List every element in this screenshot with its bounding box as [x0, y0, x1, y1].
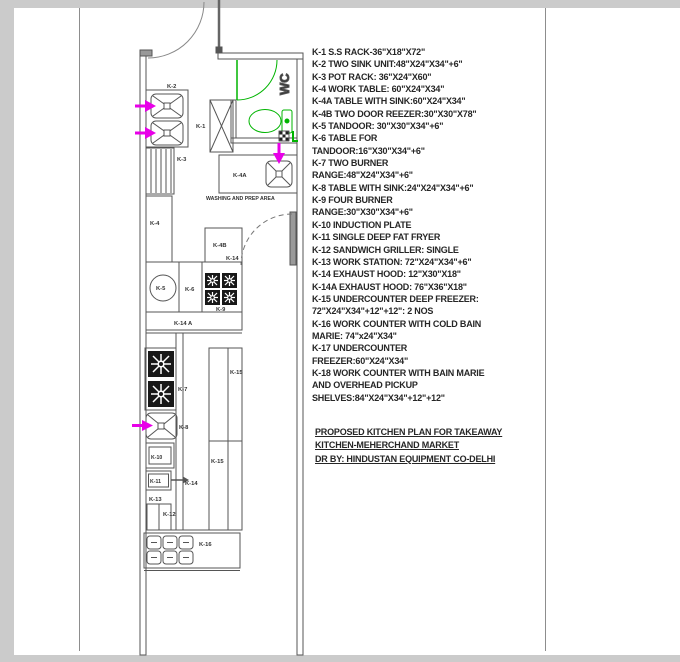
bain-marie-pans — [147, 536, 193, 564]
sink-icon — [266, 161, 292, 187]
wc-room: WC — [231, 60, 298, 143]
legend-line: K-2 TWO SINK UNIT:48"X24"X34"+6" — [312, 58, 544, 70]
wc-door — [237, 60, 277, 100]
legend-line: AND OVERHEAD PICKUP — [312, 379, 544, 391]
equipment-k16-bain-marie-counter: K-16 — [144, 533, 240, 571]
legend-line: K-6 TABLE FOR — [312, 132, 544, 144]
label-k14a: K-14 A — [174, 321, 193, 327]
legend-line: K-13 WORK STATION: 72"X24"X34"+6" — [312, 256, 544, 268]
label-k4a: K-4A — [233, 173, 247, 179]
equipment-k3-pot-rack: K-3 — [146, 148, 187, 194]
washing-prep-area-label: WASHING AND PREP AREA — [206, 196, 275, 202]
legend-line: K-1 S.S RACK-36"X18"X72" — [312, 46, 544, 58]
legend-line: K-8 TABLE WITH SINK:24"X24"X34"+6" — [312, 182, 544, 194]
toilet-icon — [249, 110, 292, 134]
wc-room-label: WC — [277, 73, 292, 95]
label-k6: K-6 — [185, 287, 195, 293]
four-burner-range-icon — [205, 273, 237, 305]
legend-line: K-14 EXHAUST HOOD: 12"X30"X18" — [312, 268, 544, 280]
entrance-door-arc — [148, 2, 204, 58]
label-k13: K-13 — [149, 497, 162, 503]
cad-viewport: { "plan": { "wc_label": "WC", "area_labe… — [0, 0, 680, 662]
water-supply-arrow — [135, 100, 156, 112]
title-line: PROPOSED KITCHEN PLAN FOR TAKEAWAY — [315, 426, 545, 439]
water-supply-arrow — [132, 420, 153, 431]
legend-line: K-4B TWO DOOR REEZER:30"X30"X78" — [312, 108, 544, 120]
label-k16: K-16 — [199, 542, 212, 548]
legend-line: 72"X24"X34"+12"+12": 2 NOS — [312, 305, 544, 317]
legend-line: TANDOOR:16"X30"X34"+6" — [312, 145, 544, 157]
legend-line: K-14A EXHAUST HOOD: 76"X36"X18" — [312, 281, 544, 293]
legend-line: K-3 POT RACK: 36"X24"X60" — [312, 71, 544, 83]
legend-line: K-17 UNDERCOUNTER — [312, 342, 544, 354]
equipment-legend: K-1 S.S RACK-36"X18"X72"K-2 TWO SINK UNI… — [312, 46, 544, 404]
walls — [140, 0, 303, 655]
legend-line: K-7 TWO BURNER — [312, 157, 544, 169]
legend-line: RANGE:48"X24"X34"+6" — [312, 169, 544, 181]
legend-line: K-11 SINGLE DEEP FAT FRYER — [312, 231, 544, 243]
label-k3: K-3 — [177, 157, 187, 163]
label-k10: K-10 — [151, 455, 162, 461]
equipment-k10-induction: K-10 — [146, 443, 174, 468]
service-door — [241, 212, 296, 265]
equipment-k1-rack: K-1 — [196, 100, 233, 152]
label-k4b: K-4B — [213, 243, 227, 249]
legend-line: RANGE:30"X30"X34"+6" — [312, 206, 544, 218]
equipment-k15-freezers: K-15 K-15 — [209, 348, 243, 530]
legend-line: K-15 UNDERCOUNTER DEEP FREEZER: — [312, 293, 544, 305]
label-k14-top: K-14 — [226, 256, 239, 262]
title-block: PROPOSED KITCHEN PLAN FOR TAKEAWAYKITCHE… — [315, 426, 545, 466]
legend-line: MARIE: 74"x24"X34" — [312, 330, 544, 342]
legend-line: K-10 INDUCTION PLATE — [312, 219, 544, 231]
label-k11: K-11 — [150, 479, 161, 485]
water-supply-arrow — [135, 127, 156, 139]
legend-line: K-5 TANDOOR: 30"X30"X34"+6" — [312, 120, 544, 132]
label-k1: K-1 — [196, 124, 206, 130]
floor-drain-icon — [279, 131, 289, 141]
label-k8: K-8 — [179, 425, 189, 431]
equipment-k4-work-table: K-4 — [146, 196, 172, 262]
label-k5: K-5 — [156, 286, 166, 292]
label-k15-upper: K-15 — [230, 370, 243, 376]
label-k12: K-12 — [163, 512, 176, 518]
legend-line: K-16 WORK COUNTER WITH COLD BAIN — [312, 318, 544, 330]
label-k2: K-2 — [167, 84, 176, 90]
legend-line: K-12 SANDWICH GRILLER: SINGLE — [312, 244, 544, 256]
legend-line: K-4A TABLE WITH SINK:60"X24"X34" — [312, 95, 544, 107]
cooking-counter: K-5 K-6 — [146, 262, 242, 313]
legend-line: K-18 WORK COUNTER WITH BAIN MARIE — [312, 367, 544, 379]
title-line: KITCHEN-MEHERCHAND MARKET — [315, 439, 545, 452]
title-line: DR BY: HINDUSTAN EQUIPMENT CO-DELHI — [315, 453, 545, 466]
equipment-k14a-hood: K-14 A — [146, 312, 242, 333]
label-k14-mid: K-14 — [185, 481, 198, 487]
legend-line: SHELVES:84"X24"X34"+12"+12" — [312, 392, 544, 404]
legend-line: K-4 WORK TABLE: 60"X24"X34" — [312, 83, 544, 95]
label-k4: K-4 — [150, 221, 160, 227]
equipment-k4a-table-with-sink: K-4A — [219, 143, 297, 193]
equipment-k7-two-burner: K-7 — [145, 348, 187, 410]
equipment-k12-griller: K-12 — [147, 504, 176, 530]
legend-line: FREEZER:60"X24"X34" — [312, 355, 544, 367]
legend-line: K-9 FOUR BURNER — [312, 194, 544, 206]
label-k15-lower: K-15 — [211, 459, 224, 465]
